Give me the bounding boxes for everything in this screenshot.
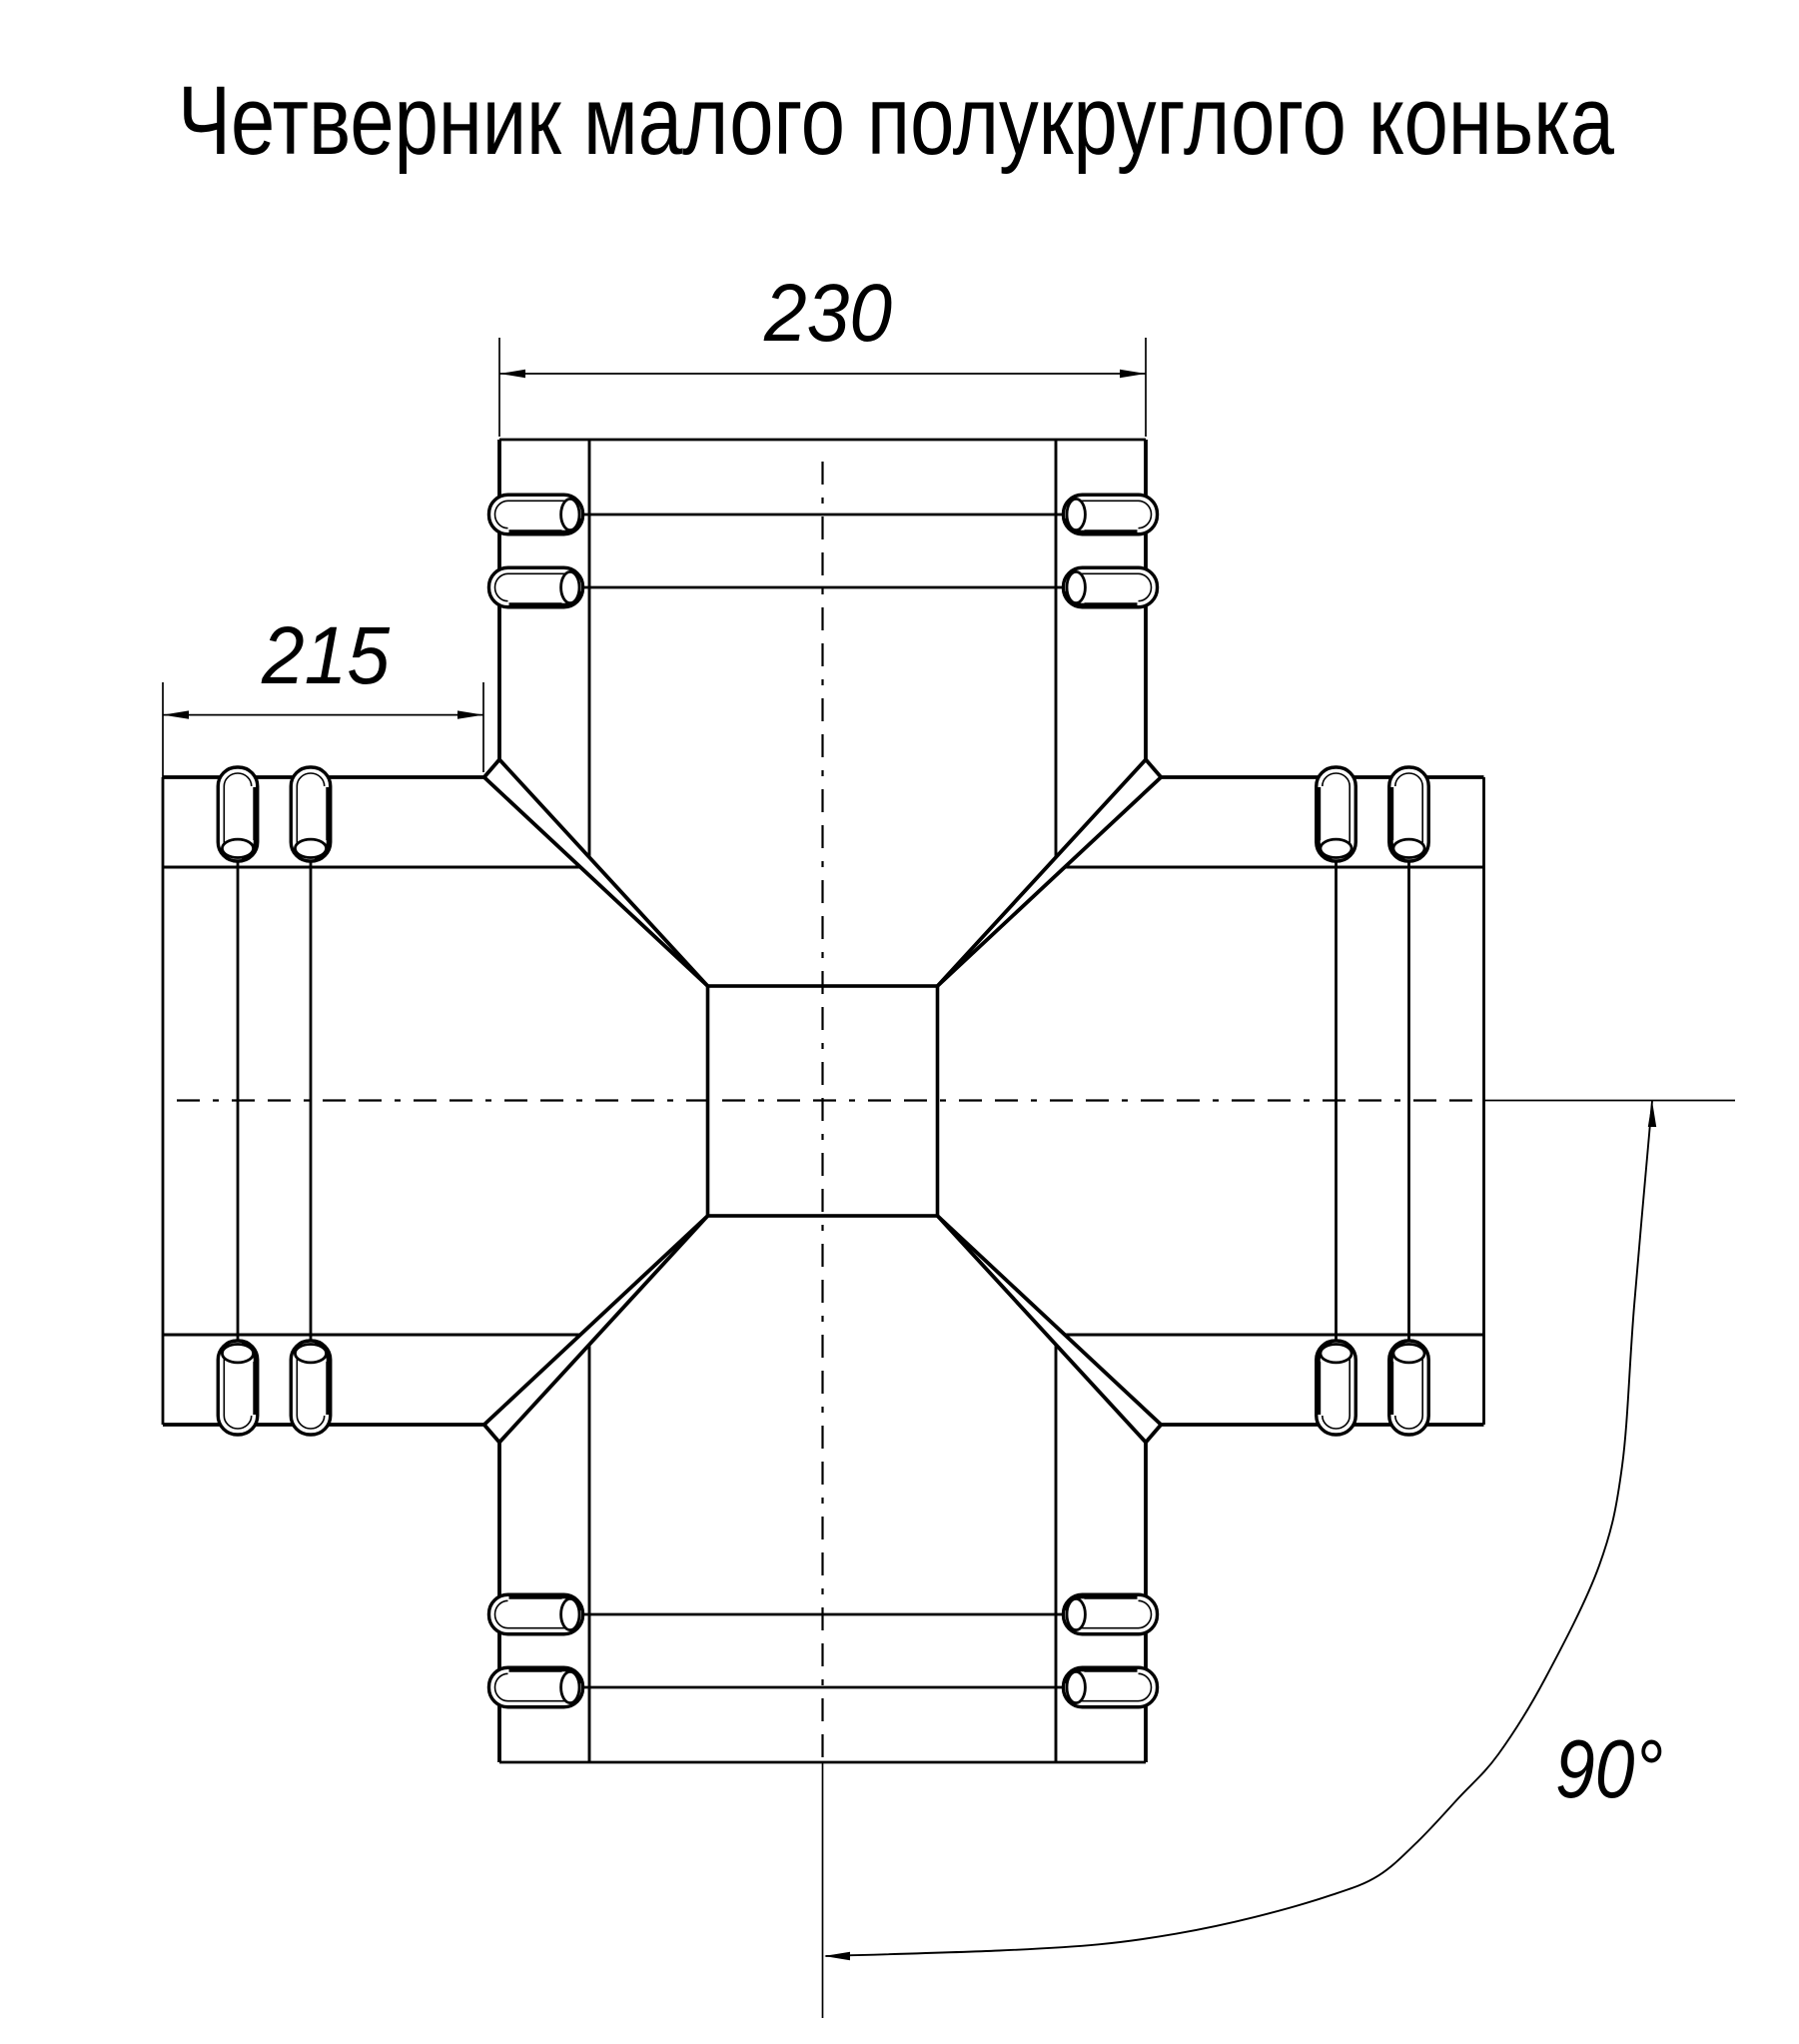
svg-text:Четверник малого полукруглого: Четверник малого полукруглого конька [178,66,1614,175]
svg-text:215: 215 [261,610,390,701]
svg-text:90°: 90° [1555,1722,1663,1815]
svg-text:230: 230 [763,268,892,359]
